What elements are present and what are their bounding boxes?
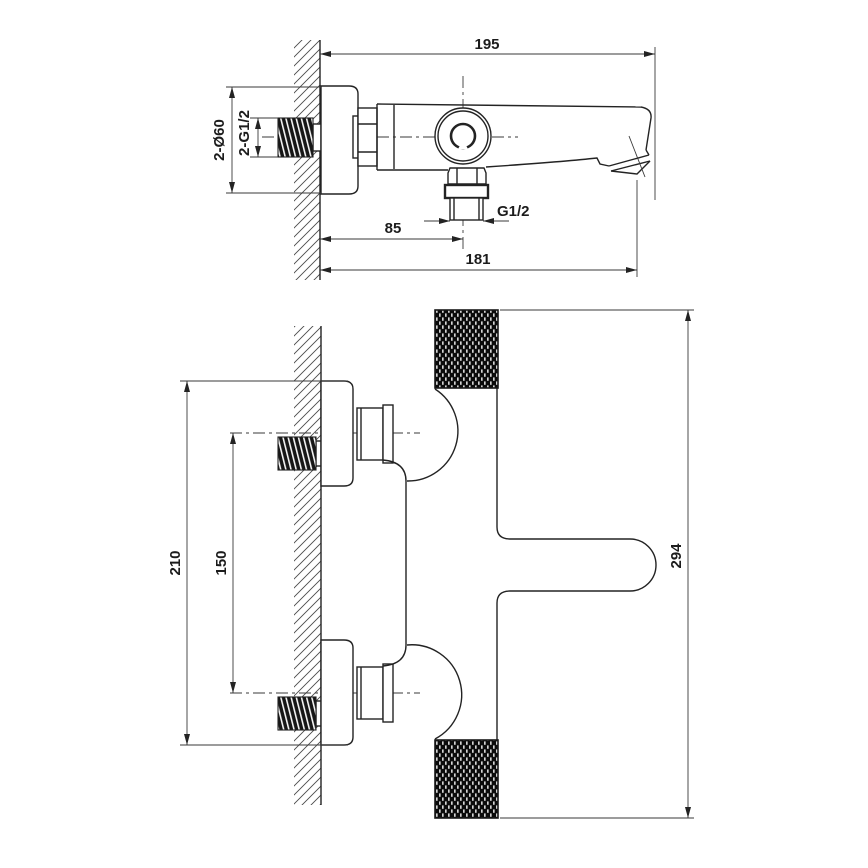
drawing-page: 195 2-Ø60 2-G1/2 G1/2	[0, 0, 868, 868]
connector-top	[357, 405, 393, 463]
dim-label-2-g12: 2-G1/2	[236, 110, 253, 156]
escutcheon-plan-bottom	[321, 640, 353, 745]
connector-bottom	[357, 664, 393, 722]
side-view: 195 2-Ø60 2-G1/2 G1/2	[211, 36, 655, 280]
dim-label-2-d60: 2-Ø60	[211, 119, 228, 161]
dim-label-85: 85	[385, 220, 402, 237]
plan-view: 210 150 294	[167, 310, 694, 818]
connector-collar	[353, 116, 358, 158]
dim-label-195: 195	[474, 36, 499, 53]
inlet-nipple-top	[278, 437, 316, 470]
wall-hatch	[294, 40, 320, 280]
union-dome-bottom	[407, 645, 462, 739]
union-dome-top	[407, 389, 458, 481]
dim-inlet-thread: 2-G1/2	[236, 110, 278, 157]
connector-nut	[358, 108, 377, 166]
mixer-body-plan	[497, 388, 656, 740]
shower-outlet	[445, 168, 488, 220]
dim-150: 150	[213, 433, 236, 693]
spout-side	[486, 107, 651, 177]
dim-label-210: 210	[167, 550, 184, 575]
nipple-shank	[313, 124, 321, 151]
outlet-ring	[445, 185, 488, 198]
outlet-pipe	[450, 198, 483, 220]
dim-294: 294	[500, 310, 694, 818]
dim-label-294: 294	[668, 543, 685, 569]
nipple-shank-top	[316, 441, 321, 466]
nipple-shank-bottom	[316, 701, 321, 726]
body-column	[383, 460, 406, 666]
wall-hatch-plan	[294, 326, 321, 805]
dim-label-181: 181	[465, 251, 490, 268]
dim-label-g12: G1/2	[497, 203, 530, 220]
inlet-nipple-thread	[278, 118, 313, 157]
knob-circle	[435, 108, 491, 164]
knurled-handle-top	[435, 310, 498, 388]
escutcheon-plan-top	[321, 381, 353, 486]
technical-drawing-canvas: 195 2-Ø60 2-G1/2 G1/2	[0, 0, 868, 868]
inlet-nipple-bottom	[278, 697, 316, 730]
dim-label-150: 150	[213, 550, 230, 575]
knurled-handle-bottom	[435, 740, 498, 818]
